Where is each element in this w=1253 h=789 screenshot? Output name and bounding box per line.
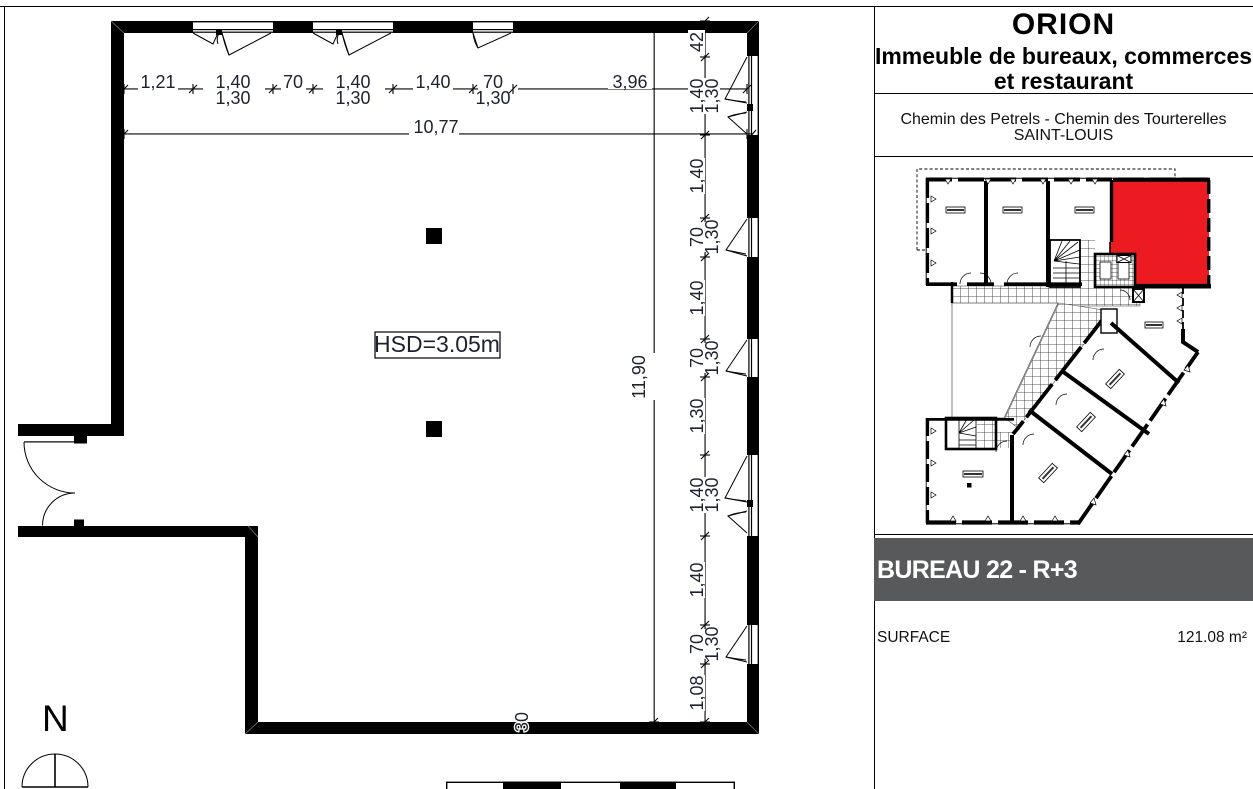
svg-text:10,77: 10,77 [413,117,458,137]
svg-text:1,21: 1,21 [140,72,175,92]
svg-text:N: N [42,698,69,739]
svg-text:1,30: 1,30 [335,88,370,108]
svg-text:1,30: 1,30 [687,398,707,433]
svg-text:HSD=3.05m: HSD=3.05m [374,331,500,357]
svg-text:1,40: 1,40 [687,158,707,193]
svg-text:1,30: 1,30 [702,477,722,512]
svg-text:30: 30 [512,712,532,732]
svg-text:3,96: 3,96 [612,72,647,92]
svg-text:70: 70 [283,72,303,92]
svg-text:1,30: 1,30 [475,88,510,108]
svg-text:1,30: 1,30 [702,78,722,113]
svg-text:1,30: 1,30 [702,626,722,661]
svg-text:42: 42 [687,32,707,52]
svg-text:1,30: 1,30 [215,88,250,108]
svg-text:1,08: 1,08 [687,675,707,710]
svg-text:1,30: 1,30 [702,340,722,375]
svg-text:1,30: 1,30 [702,219,722,254]
svg-text:1,40: 1,40 [415,72,450,92]
svg-text:1,40: 1,40 [687,280,707,315]
svg-text:11,90: 11,90 [629,355,649,399]
svg-text:1,40: 1,40 [687,562,707,597]
